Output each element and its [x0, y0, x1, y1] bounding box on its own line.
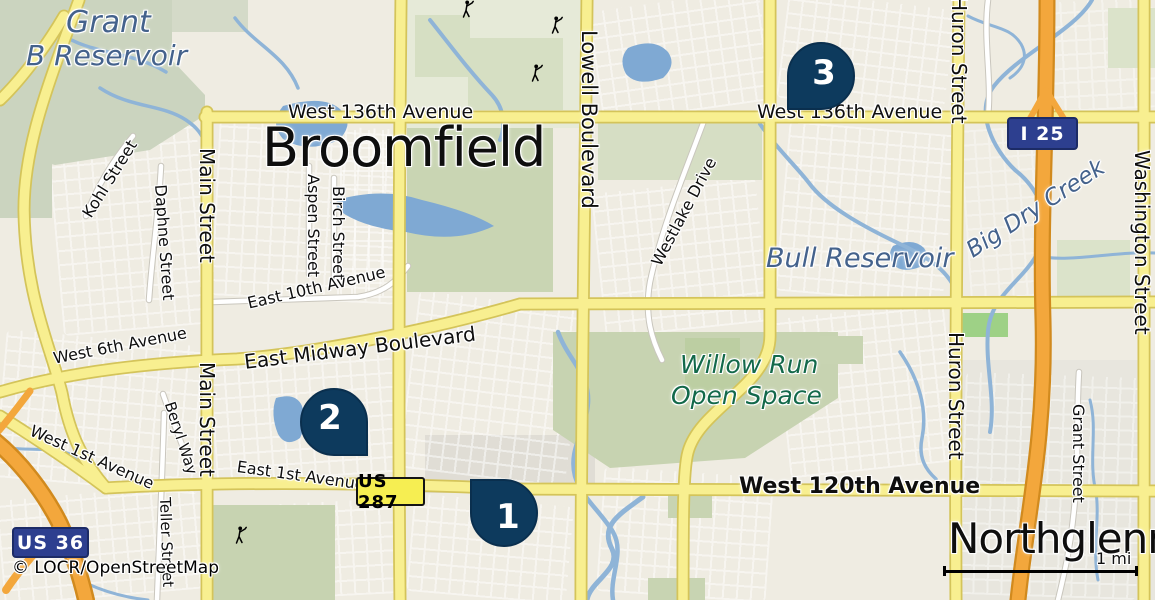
map-label-main-street: Main Street [197, 362, 217, 477]
map-label-willow-run: Willow Run [680, 352, 818, 377]
map-label-grant-street: Grant Street [1070, 404, 1086, 503]
attribution-text: © LOCR/OpenStreetMap [12, 560, 219, 577]
map-label-b-reservoir: B Reservoir [26, 42, 187, 70]
map-label-open-space: Open Space [671, 383, 822, 408]
map-marker-number: 1 [496, 497, 520, 537]
map-label-huron-street: Huron Street [946, 332, 966, 460]
map-marker-1[interactable]: 1 [470, 479, 538, 547]
route-shield-us-287: US 287 [356, 477, 425, 506]
map-label-huron-street: Huron Street [949, 0, 969, 124]
route-shield-us-36: US 36 [12, 527, 89, 558]
map-label-washington-street: Washington Street [1132, 150, 1152, 335]
map-label-aspen-street: Aspen Street [305, 174, 321, 277]
scale-bar [943, 566, 1138, 576]
map-label-broomfield: Broomfield [262, 121, 545, 175]
map-marker-3[interactable]: 3 [787, 42, 855, 110]
map-marker-number: 2 [318, 398, 342, 438]
map-label-west-120th-avenue: West 120th Avenue [739, 476, 980, 498]
map-marker-2[interactable]: 2 [300, 388, 368, 456]
map-label-west-136th-avenue: West 136th Avenue [757, 103, 942, 122]
map-label-west-136th-avenue: West 136th Avenue [288, 103, 473, 122]
map-label-grant: Grant [66, 8, 151, 38]
route-shield-i-25: I 25 [1007, 117, 1078, 150]
map-label-bull-reservoir: Bull Reservoir [766, 245, 953, 272]
map-label-birch-street: Birch Street [330, 186, 346, 280]
map-label-main-street: Main Street [197, 148, 217, 263]
map-marker-number: 3 [812, 53, 836, 93]
scale-label: 1 mi [1096, 551, 1131, 567]
map-canvas[interactable]: GrantB ReservoirBroomfieldWest 136th Ave… [0, 0, 1155, 600]
map-label-lowell-boulevard: Lowell Boulevard [578, 30, 599, 209]
